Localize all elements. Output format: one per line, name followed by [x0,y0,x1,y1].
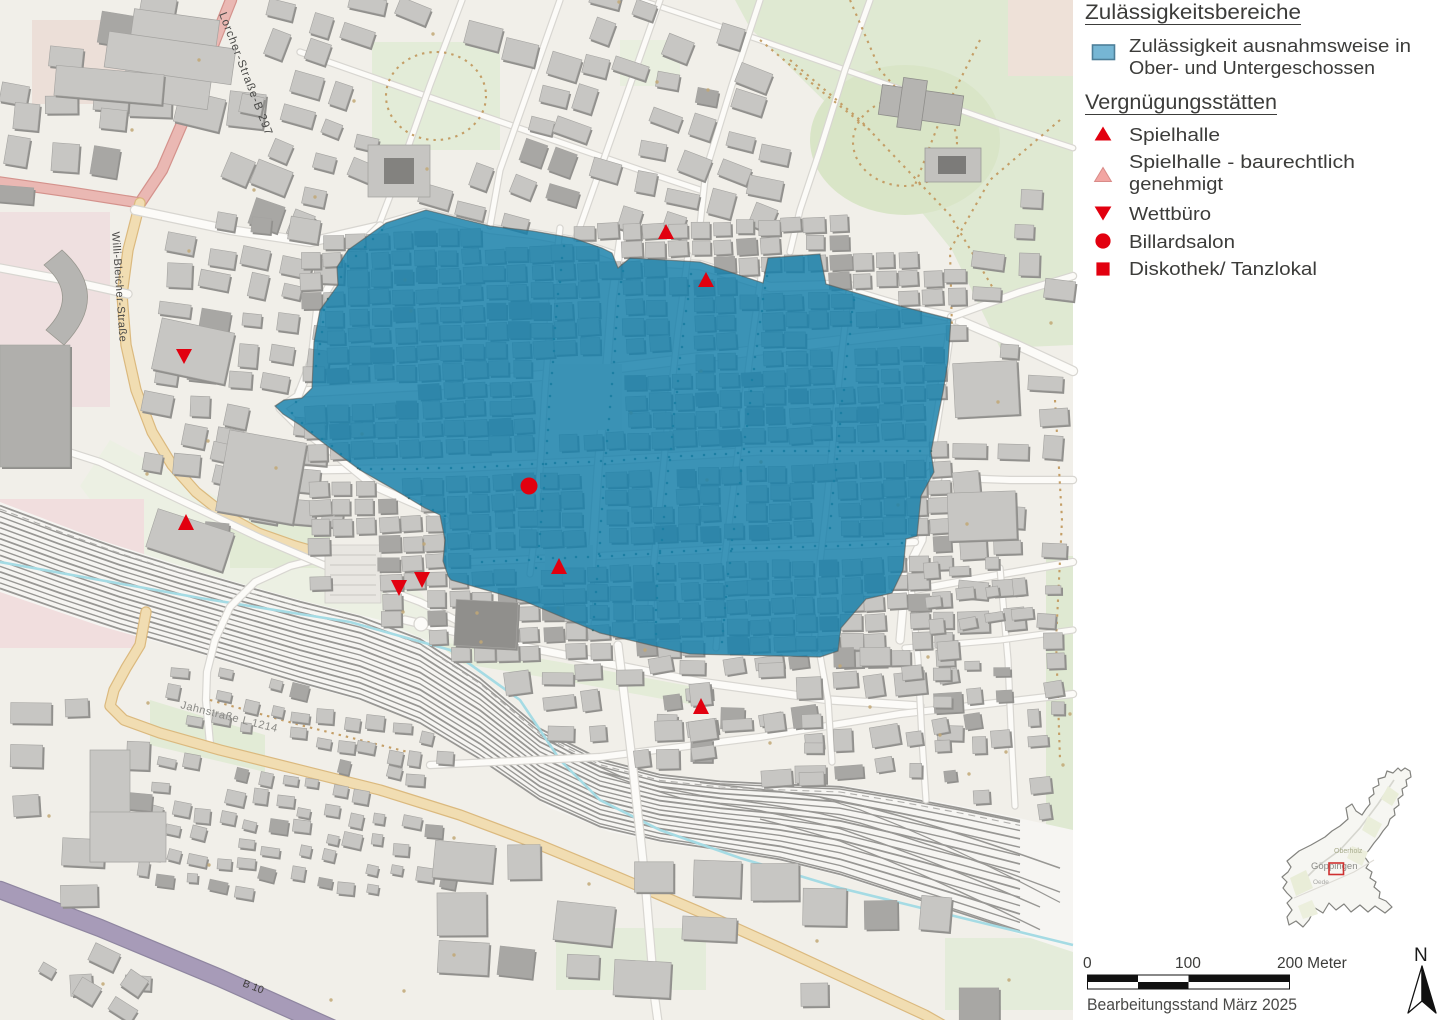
svg-text:genehmigt: genehmigt [1129,174,1223,194]
svg-text:Bearbeitungsstand März 2025: Bearbeitungsstand März 2025 [1087,996,1297,1014]
svg-text:Diskothek/ Tanzlokal: Diskothek/ Tanzlokal [1129,259,1317,279]
svg-text:Zulässigkeit ausnahmsweise in: Zulässigkeit ausnahmsweise in [1129,36,1411,56]
svg-text:100: 100 [1175,955,1201,972]
svg-text:Vergnügungsstätten: Vergnügungsstätten [1085,91,1277,114]
svg-text:Wettbüro: Wettbüro [1129,204,1211,224]
svg-text:Spielhalle - baurechtlich: Spielhalle - baurechtlich [1129,152,1355,172]
svg-text:Oede: Oede [1313,879,1329,886]
svg-text:0: 0 [1083,955,1092,972]
svg-text:Zulässigkeitsbereiche: Zulässigkeitsbereiche [1085,1,1301,24]
svg-text:Ober- und Untergeschossen: Ober- und Untergeschossen [1129,58,1375,78]
svg-text:N: N [1414,945,1428,966]
svg-text:200 Meter: 200 Meter [1277,955,1347,972]
svg-text:Billardsalon: Billardsalon [1129,232,1235,252]
svg-text:Oberholz: Oberholz [1334,848,1363,855]
svg-text:Spielhalle: Spielhalle [1129,125,1220,145]
